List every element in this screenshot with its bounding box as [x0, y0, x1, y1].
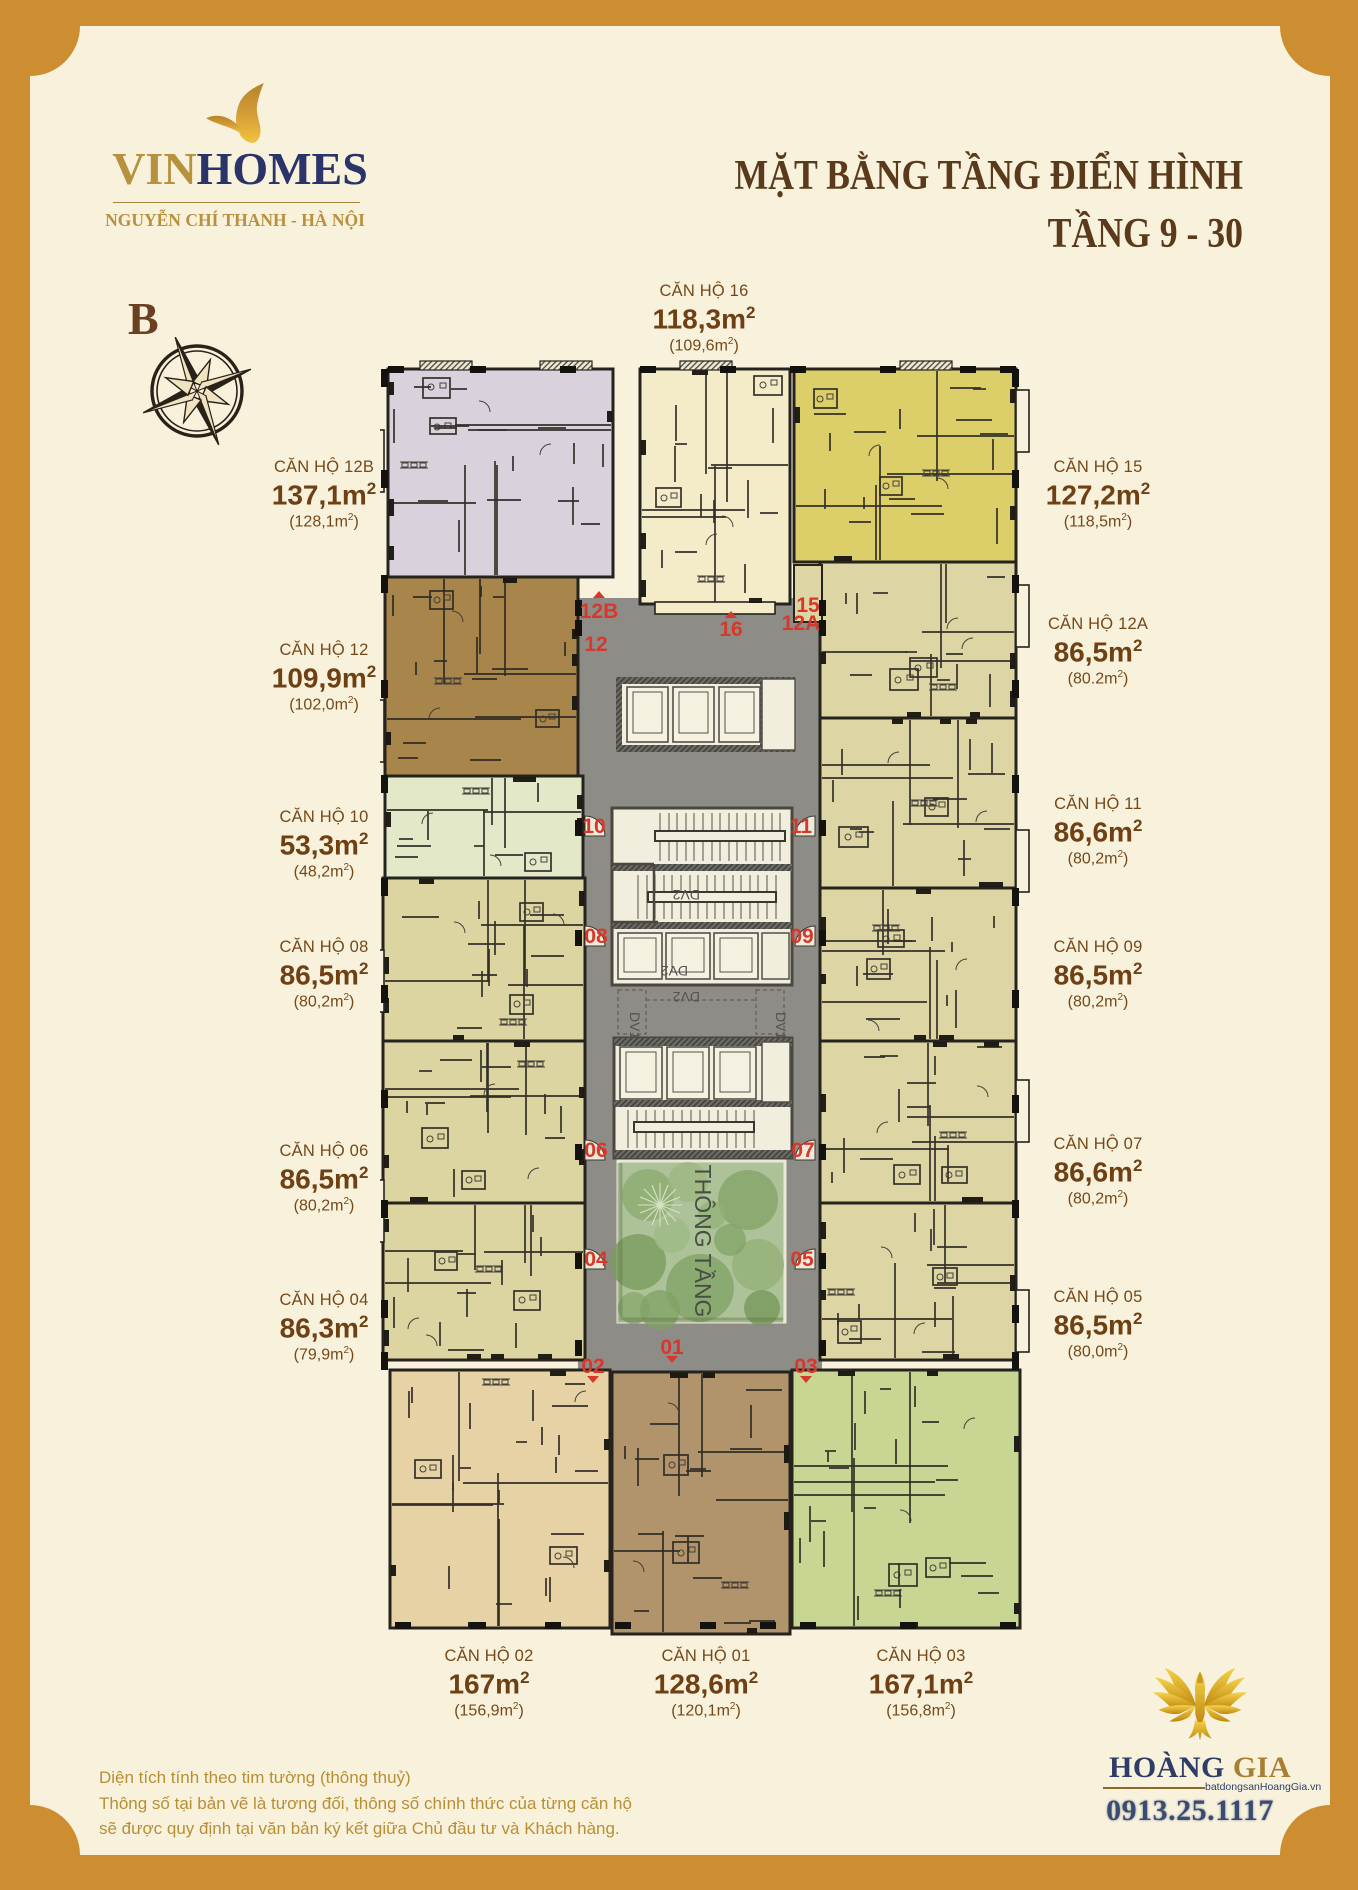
svg-text:01: 01	[660, 1336, 684, 1359]
svg-text:04: 04	[584, 1248, 608, 1271]
svg-text:09: 09	[790, 925, 813, 948]
svg-text:06: 06	[584, 1139, 607, 1162]
svg-text:03: 03	[794, 1355, 817, 1378]
svg-text:07: 07	[791, 1139, 814, 1162]
svg-text:11: 11	[790, 815, 813, 838]
svg-text:DV1: DV1	[773, 1012, 789, 1039]
svg-text:DV1: DV1	[627, 1012, 643, 1039]
svg-text:12: 12	[584, 633, 607, 656]
svg-text:THÔNG TẦNG: THÔNG TẦNG	[690, 1165, 717, 1318]
svg-text:12A: 12A	[782, 612, 821, 635]
svg-text:12B: 12B	[580, 600, 619, 623]
svg-text:05: 05	[790, 1248, 814, 1271]
svg-text:02: 02	[581, 1355, 604, 1378]
svg-text:DV2: DV2	[673, 887, 700, 903]
svg-text:08: 08	[584, 925, 608, 948]
svg-text:DV2: DV2	[673, 989, 700, 1005]
svg-text:DV2: DV2	[661, 963, 688, 979]
svg-text:16: 16	[719, 618, 742, 641]
svg-text:10: 10	[582, 815, 605, 838]
